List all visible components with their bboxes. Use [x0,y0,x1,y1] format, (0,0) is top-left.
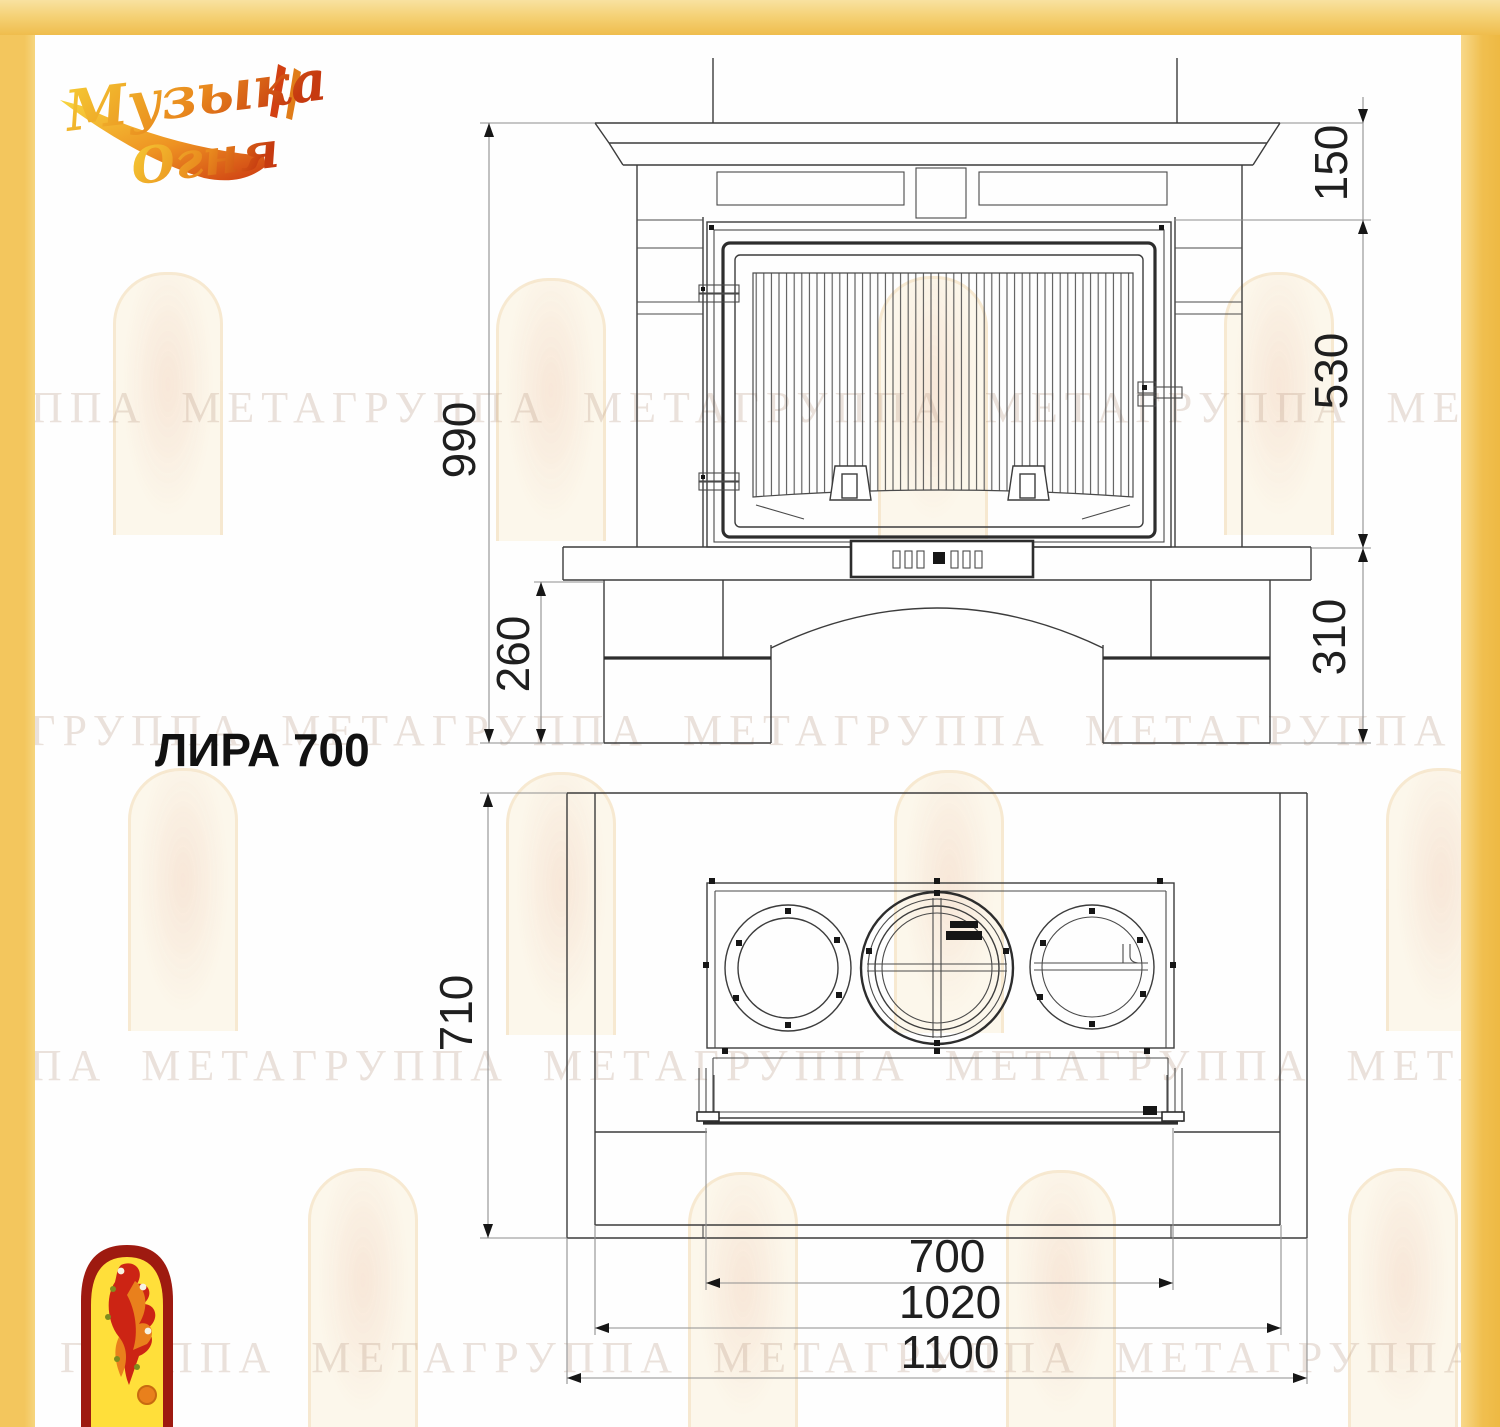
page: ГРУППА МЕТАГРУППА МЕТАГРУППА МЕТАГРУППА … [0,0,1500,1427]
flower-dot [140,1284,147,1291]
sprig-dot [110,1286,116,1292]
flue-circle-right [1030,905,1154,1029]
watermark-text-row: ГРУППА МЕТАГРУППА МЕТАГРУППА МЕТАГРУППА … [0,382,1500,433]
watermark-text-row: ГРУППА МЕТАГРУППА МЕТАГРУППА МЕТАГРУППА … [60,1332,1500,1383]
watermark-arch [894,770,1004,1033]
door-foot [830,466,871,500]
watermark-arch [1348,1168,1458,1427]
sprig-dot [114,1356,120,1362]
flower-dot [118,1268,125,1275]
frame-left [0,0,35,1427]
watermark-arch [1006,1170,1116,1427]
frame-top [0,0,1500,35]
flower-dot [145,1328,152,1335]
sprig-dot [105,1314,111,1320]
watermark-arch [506,772,616,1035]
watermark-arch [308,1168,418,1427]
sprig-dot [134,1364,140,1370]
dim-label-260: 260 [487,616,539,693]
watermark-text-row: ГРУППА МЕТАГРУППА МЕТАГРУППА МЕТАГРУППА … [30,705,1500,756]
frame-right [1461,0,1500,1427]
watermark-arch [128,768,238,1031]
watermark-arch [688,1172,798,1427]
brand-logo: Музыка Огня [52,36,352,216]
dim-label-700: 700 [909,1230,986,1282]
firebird-logo [77,1237,177,1427]
watermark-text-row: ГРУППА МЕТАГРУППА МЕТАГРУППА МЕТАГРУППА … [0,1040,1497,1091]
dim-label-1020: 1020 [899,1276,1001,1328]
vent-strip [851,541,1033,577]
flue-circle-left [725,905,851,1031]
dim-label-310: 310 [1303,599,1355,676]
sun-mark [138,1386,156,1404]
dim-label-150: 150 [1305,125,1357,202]
door-foot [1008,466,1049,500]
